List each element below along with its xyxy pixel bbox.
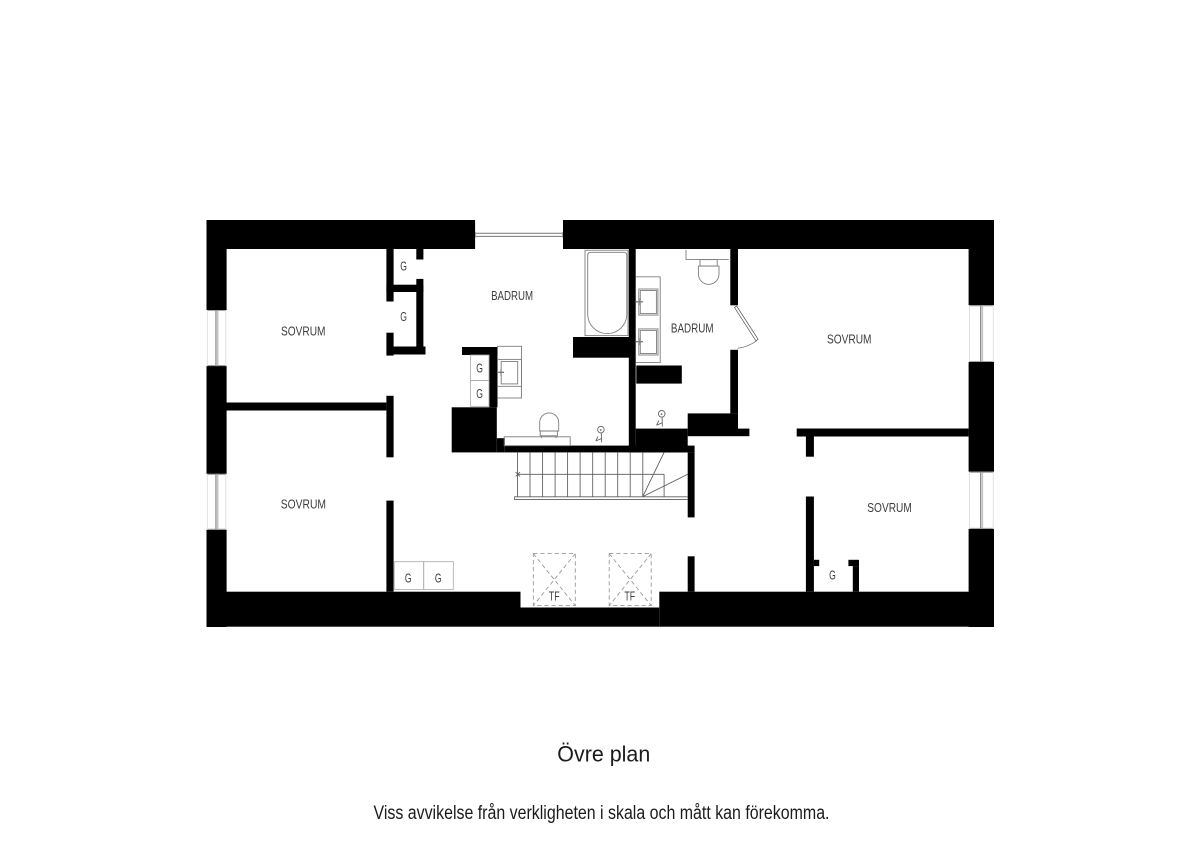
svg-text:G: G: [476, 361, 483, 376]
svg-text:TF: TF: [624, 589, 635, 604]
svg-text:BADRUM: BADRUM: [671, 322, 714, 336]
svg-text:SOVRUM: SOVRUM: [827, 333, 872, 347]
svg-text:SOVRUM: SOVRUM: [867, 501, 912, 515]
svg-text:TF: TF: [549, 589, 560, 604]
svg-text:BADRUM: BADRUM: [491, 289, 533, 303]
svg-text:G: G: [400, 259, 407, 274]
svg-text:Viss avvikelse från verklighet: Viss avvikelse från verkligheten i skala…: [374, 802, 830, 824]
svg-text:G: G: [829, 568, 836, 583]
svg-text:G: G: [476, 386, 483, 401]
svg-text:SOVRUM: SOVRUM: [281, 498, 326, 512]
svg-text:G: G: [400, 309, 407, 324]
svg-text:SOVRUM: SOVRUM: [281, 325, 326, 339]
svg-text:G: G: [435, 570, 442, 585]
svg-text:G: G: [405, 570, 412, 585]
svg-text:Övre plan: Övre plan: [557, 742, 650, 767]
